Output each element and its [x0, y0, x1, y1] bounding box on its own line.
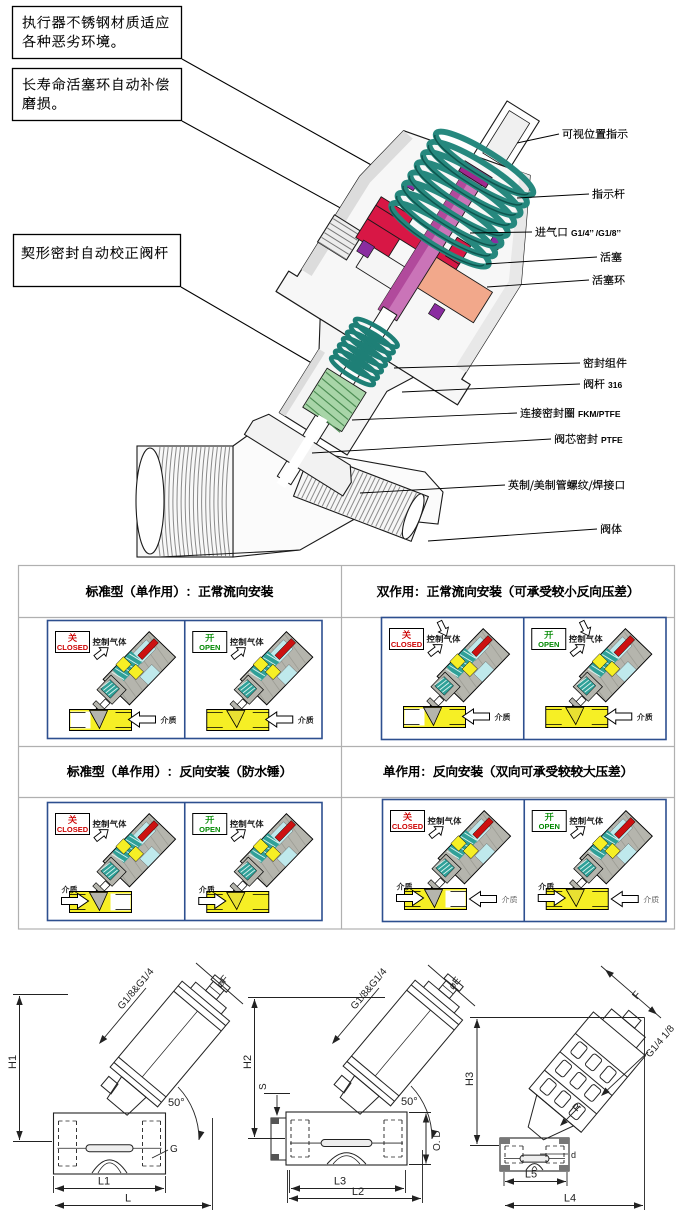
svg-text:316: 316	[608, 380, 622, 390]
svg-text:CLOSED: CLOSED	[57, 825, 89, 834]
svg-text:50°: 50°	[401, 1096, 418, 1108]
svg-text:OPEN: OPEN	[539, 822, 560, 831]
svg-text:CLOSED: CLOSED	[57, 643, 89, 652]
svg-text:G1/4’’ /G1/8’’: G1/4’’ /G1/8’’	[571, 228, 621, 238]
svg-text:L1: L1	[98, 1176, 110, 1188]
svg-text:H3: H3	[464, 1072, 476, 1086]
svg-text:OPEN: OPEN	[199, 825, 220, 834]
svg-text:G: G	[170, 1144, 178, 1155]
svg-text:L: L	[125, 1193, 131, 1205]
svg-text:L2: L2	[352, 1186, 364, 1198]
svg-text:S: S	[258, 1083, 269, 1090]
svg-text:H1: H1	[7, 1055, 19, 1069]
svg-text:H2: H2	[242, 1055, 254, 1069]
svg-text:50°: 50°	[168, 1097, 185, 1109]
svg-text:L3: L3	[334, 1176, 346, 1188]
svg-text:L5: L5	[525, 1169, 537, 1181]
svg-text:CLOSED: CLOSED	[392, 822, 424, 831]
svg-text:PTFE: PTFE	[601, 435, 623, 445]
svg-text:OPEN: OPEN	[538, 640, 559, 649]
svg-text:OPEN: OPEN	[199, 643, 220, 652]
svg-text:CLOSED: CLOSED	[391, 640, 423, 649]
svg-text:FKM/PTFE: FKM/PTFE	[578, 409, 621, 419]
svg-text:d: d	[571, 1150, 576, 1160]
svg-text:L4: L4	[564, 1193, 576, 1205]
